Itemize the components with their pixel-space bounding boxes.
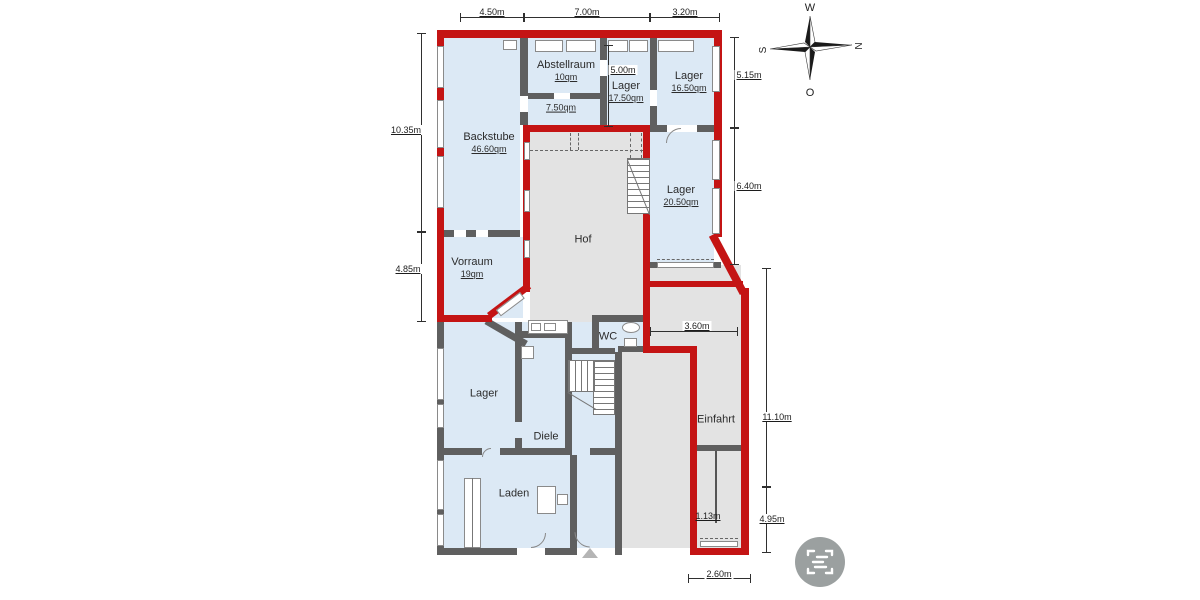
wall-wc-top — [592, 315, 648, 322]
window — [437, 156, 444, 208]
wall — [600, 38, 607, 60]
dim-label: 4.85m — [393, 264, 422, 274]
wall — [615, 352, 622, 555]
room-area: 10qm — [537, 72, 595, 83]
wall — [500, 448, 572, 455]
window — [712, 188, 720, 234]
room-label-backstube: Backstube 46.60qm — [463, 131, 514, 155]
room-label-lager16: Lager 16.50qm — [671, 70, 706, 94]
unit-outline-top — [437, 30, 722, 38]
wall-niche — [503, 40, 517, 50]
wall — [444, 230, 454, 237]
kitchen-sink — [531, 323, 541, 331]
dim-label: 3.20m — [670, 7, 699, 17]
laden-chair — [557, 494, 568, 505]
stairs-dash — [630, 133, 631, 158]
room-name: Lager — [663, 184, 698, 197]
room-label-vorraum: Vorraum 19qm — [451, 256, 493, 280]
hof-dash — [570, 133, 571, 150]
laden-shelf-line — [472, 478, 473, 548]
window-sill — [629, 40, 648, 52]
window — [524, 142, 530, 160]
wall — [570, 93, 600, 99]
wall — [650, 38, 657, 90]
wall — [650, 262, 657, 268]
unit-outline-hof-top — [523, 125, 650, 132]
dim-label: 2.60m — [704, 569, 733, 579]
stairs-ground-main — [593, 360, 615, 415]
window — [437, 348, 444, 400]
hof-dashed-line — [530, 150, 643, 151]
dim-line — [734, 128, 735, 265]
room-label-wc: WC — [599, 330, 617, 343]
wall — [648, 125, 667, 132]
wall — [697, 125, 714, 132]
room-name: Vorraum — [451, 256, 493, 269]
room-name: Abstellraum — [537, 59, 595, 72]
compass-west-label: W — [805, 2, 816, 14]
dim-line — [524, 17, 650, 18]
scan-view-button[interactable] — [794, 536, 846, 588]
unit-outline-bottom — [690, 548, 749, 555]
stairs-dash — [641, 133, 642, 158]
toilet-tank — [624, 338, 637, 347]
dim-label: 7.00m — [572, 7, 601, 17]
room-label-einfahrt: Einfahrt — [697, 413, 735, 426]
room-name: Lager — [608, 80, 643, 93]
window-dash — [700, 538, 738, 539]
room-name: Lager — [671, 70, 706, 83]
wall — [488, 230, 520, 237]
dim-label: 4.50m — [477, 7, 506, 17]
wall-outer-bottom — [444, 548, 517, 555]
room-label-lager-eg: Lager — [470, 387, 498, 400]
wall — [520, 38, 528, 96]
compass-rose: W O S N — [758, 0, 862, 104]
wall-einfahrt-room — [697, 445, 743, 451]
room-label-laden: Laden — [499, 487, 530, 500]
room-area: 16.50qm — [671, 83, 706, 94]
dim-label: 10.35m — [389, 125, 423, 135]
window — [437, 46, 444, 88]
wall — [528, 93, 554, 99]
toilet-bowl — [622, 322, 640, 333]
entrance-marker-icon — [582, 548, 598, 558]
window-dash — [657, 259, 714, 260]
wall — [650, 106, 657, 125]
room-name: WC — [599, 330, 617, 343]
dim-line — [460, 17, 524, 18]
window-sill — [535, 40, 563, 52]
room-label-diele: Diele — [533, 430, 558, 443]
room-name: Laden — [499, 487, 530, 500]
dim-label: 11.10m — [760, 412, 793, 422]
dim-label: 4.95m — [757, 514, 786, 524]
window-sill — [700, 541, 738, 547]
room-name: Backstube — [463, 131, 514, 144]
compass-south-label: S — [758, 46, 769, 53]
room-area: 19qm — [451, 269, 493, 280]
window-band — [657, 262, 714, 268]
wall — [714, 262, 721, 268]
room-area: 17.50qm — [608, 93, 643, 104]
wall — [466, 230, 476, 237]
window — [712, 140, 720, 180]
dim-label: 5.00m — [608, 65, 637, 75]
dim-label: 1.13m — [693, 511, 722, 521]
room-name: Diele — [533, 430, 558, 443]
hof-dash — [578, 133, 579, 150]
window-sill — [566, 40, 596, 52]
window-sill — [658, 40, 694, 52]
room-area: 7.50qm — [546, 103, 576, 114]
unit-outline-right-lower — [741, 288, 749, 555]
dim-label: 6.40m — [734, 181, 763, 191]
window — [437, 404, 444, 428]
dim-line — [650, 331, 738, 332]
window-sill — [608, 40, 628, 52]
compass-east-label: O — [806, 87, 815, 99]
room-label-kammer: 7.50qm — [546, 103, 576, 114]
wall — [444, 448, 482, 455]
unit-outline-wc-bottom — [643, 346, 697, 353]
dim-line — [421, 232, 422, 322]
kitchen-fixture — [521, 346, 534, 359]
room-name: Lager — [470, 387, 498, 400]
window — [437, 514, 444, 546]
dim-line — [734, 37, 735, 128]
window — [524, 240, 530, 258]
compass-north-label: N — [852, 42, 862, 49]
dim-label: 3.60m — [682, 321, 711, 331]
window — [437, 460, 444, 510]
unit-outline-einfahrt-left — [690, 346, 697, 555]
room-area: 46.60qm — [463, 144, 514, 155]
wall — [520, 112, 528, 125]
kitchen-stove — [544, 323, 556, 331]
room-name: Hof — [574, 233, 591, 246]
room-name: Einfahrt — [697, 413, 735, 426]
stairs-ground-upper — [568, 360, 595, 392]
room-area: 20.50qm — [663, 197, 698, 208]
dim-line — [650, 17, 720, 18]
room-label-hof: Hof — [574, 233, 591, 246]
room-label-lager20: Lager 20.50qm — [663, 184, 698, 208]
wall — [515, 438, 522, 448]
unit-outline-vorraum-bottom — [437, 315, 492, 322]
window — [524, 190, 530, 212]
window — [437, 100, 444, 148]
wall — [600, 76, 607, 125]
window — [712, 46, 720, 92]
courtyard-fill-einfahrt-left — [622, 352, 690, 548]
dim-line — [766, 268, 767, 487]
room-label-lager17: Lager 17.50qm — [608, 80, 643, 104]
room-label-abstellraum: Abstellraum 10qm — [537, 59, 595, 83]
floorplan-canvas: 4.50m 7.00m 3.20m 10.35m 4.85m 5.15m 6.4… — [0, 0, 1200, 600]
unit-outline-mid — [648, 281, 743, 287]
laden-desk — [537, 486, 556, 514]
